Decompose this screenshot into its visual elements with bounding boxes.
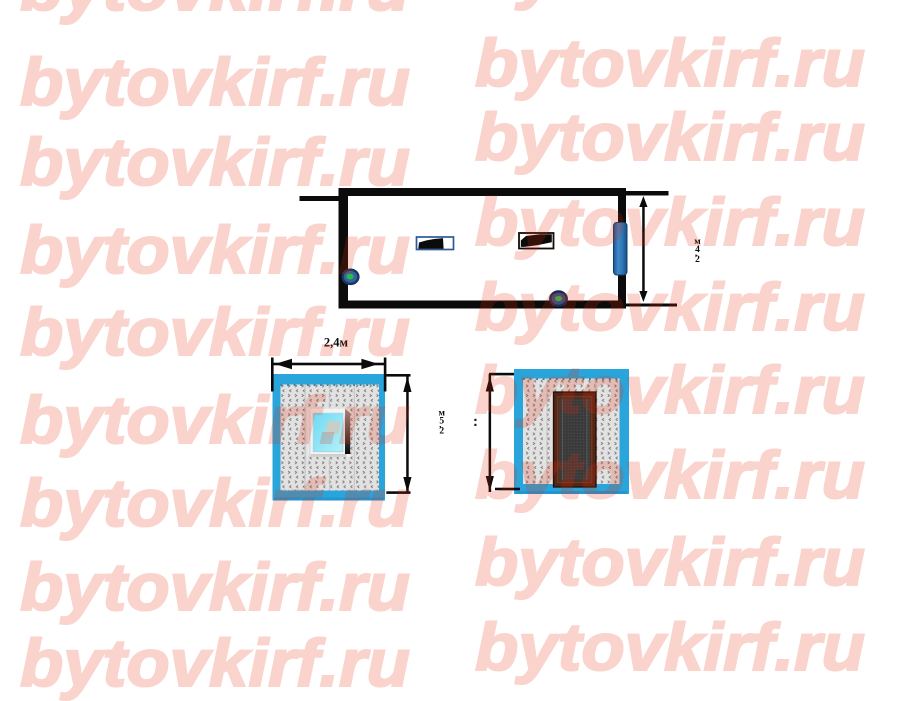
svg-text:м4,2: м4,2 [694,237,701,265]
svg-text:м5,2: м5,2 [439,409,446,437]
svg-text:2,4м: 2,4м [324,336,349,350]
